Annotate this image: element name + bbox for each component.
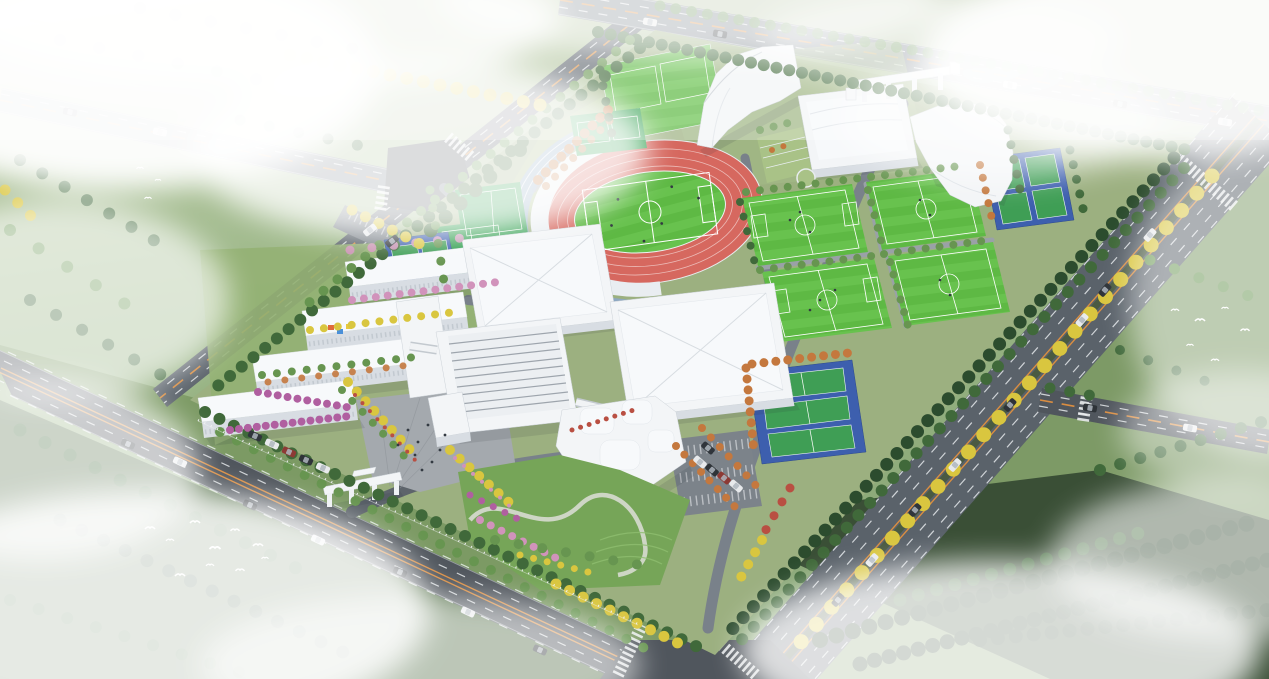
haze-top — [0, 0, 1269, 140]
pitch — [742, 184, 868, 266]
rendering-canvas: Surrounding green fields and forest Peri… — [0, 0, 1269, 679]
aerial-scene: Surrounding green fields and forest Peri… — [0, 0, 1269, 679]
